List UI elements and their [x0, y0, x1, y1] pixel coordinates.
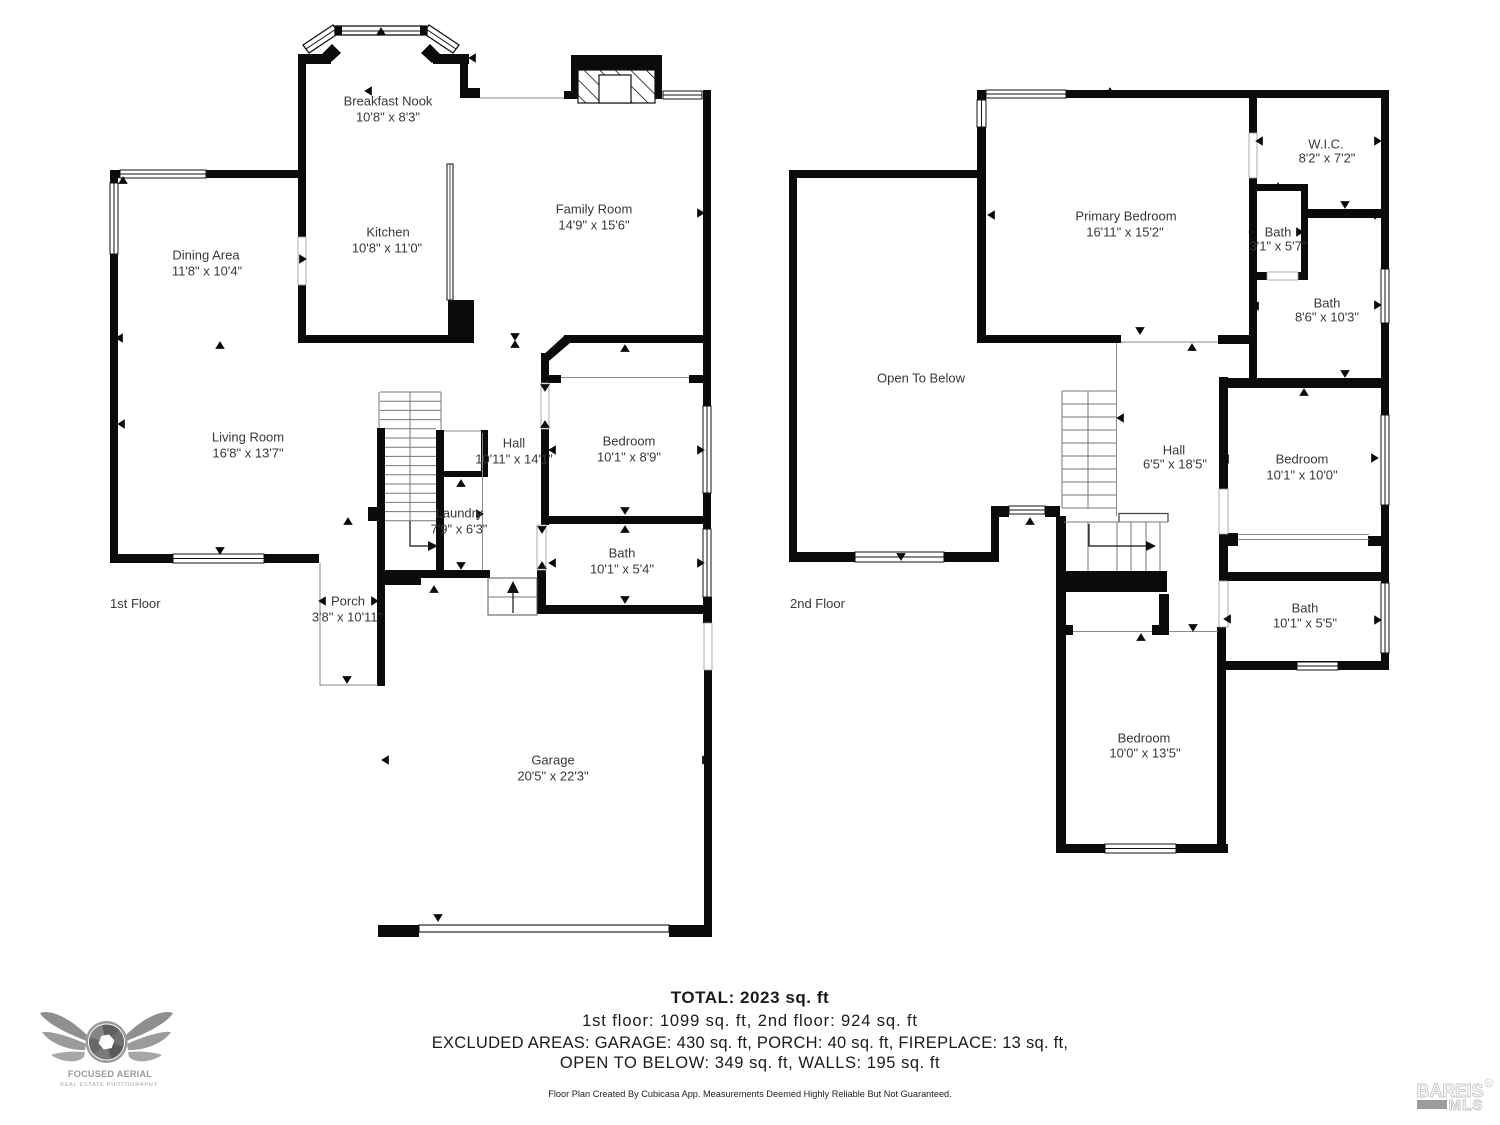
svg-text:Garage: Garage — [531, 753, 574, 768]
svg-text:TOTAL: 2023 sq. ft: TOTAL: 2023 sq. ft — [671, 988, 830, 1007]
svg-text:Bath: Bath — [1292, 601, 1319, 616]
svg-text:Bath: Bath — [1265, 225, 1292, 240]
svg-text:1st Floor: 1st Floor — [110, 596, 161, 611]
svg-text:1st floor: 1099 sq. ft, 2nd fl: 1st floor: 1099 sq. ft, 2nd floor: 924 s… — [582, 1012, 918, 1030]
svg-text:Bedroom: Bedroom — [1118, 731, 1171, 746]
svg-text:Bath: Bath — [609, 546, 636, 561]
svg-text:11'8" x 10'4": 11'8" x 10'4" — [172, 264, 243, 279]
svg-text:Floor Plan Created By Cubicasa: Floor Plan Created By Cubicasa App. Meas… — [548, 1089, 951, 1099]
svg-text:8'6" x 10'3": 8'6" x 10'3" — [1295, 310, 1359, 325]
svg-text:EXCLUDED AREAS: GARAGE: 430 sq: EXCLUDED AREAS: GARAGE: 430 sq. ft, PORC… — [432, 1034, 1068, 1052]
svg-text:Family Room: Family Room — [556, 202, 633, 217]
svg-text:20'5" x 22'3": 20'5" x 22'3" — [517, 769, 589, 784]
svg-text:10'1" x 5'4": 10'1" x 5'4" — [590, 562, 654, 577]
svg-text:Laundry: Laundry — [436, 506, 483, 521]
svg-text:Bath: Bath — [1314, 296, 1341, 311]
svg-text:16'8" x 13'7": 16'8" x 13'7" — [212, 446, 284, 461]
svg-text:14'9" x 15'6": 14'9" x 15'6" — [558, 218, 630, 233]
svg-text:10'1" x 5'5": 10'1" x 5'5" — [1273, 616, 1337, 631]
svg-text:8'2" x 7'2": 8'2" x 7'2" — [1299, 151, 1356, 166]
svg-text:REAL ESTATE PHOTOGRAPHY: REAL ESTATE PHOTOGRAPHY — [60, 1082, 158, 1088]
svg-text:Hall: Hall — [1163, 443, 1186, 458]
svg-text:Primary Bedroom: Primary Bedroom — [1075, 209, 1176, 224]
svg-text:MLS: MLS — [1449, 1097, 1484, 1114]
svg-text:10'8" x 8'3": 10'8" x 8'3" — [356, 110, 420, 125]
svg-text:2nd Floor: 2nd Floor — [790, 596, 846, 611]
svg-text:FOCUSED AERIAL: FOCUSED AERIAL — [68, 1069, 152, 1079]
svg-text:10'1" x 8'9": 10'1" x 8'9" — [597, 450, 661, 465]
svg-text:Open To Below: Open To Below — [877, 371, 966, 386]
svg-text:10'0" x 13'5": 10'0" x 13'5" — [1109, 746, 1181, 761]
svg-text:Bedroom: Bedroom — [1276, 452, 1329, 467]
svg-text:10'1" x 10'0": 10'1" x 10'0" — [1266, 468, 1338, 483]
svg-text:Kitchen: Kitchen — [366, 225, 409, 240]
svg-text:10'11" x 14'1": 10'11" x 14'1" — [475, 452, 553, 467]
svg-text:7'9" x 6'3": 7'9" x 6'3" — [431, 522, 488, 537]
svg-text:6'5" x 18'5": 6'5" x 18'5" — [1143, 457, 1207, 472]
svg-text:Living Room: Living Room — [212, 430, 284, 445]
svg-text:16'11" x 15'2": 16'11" x 15'2" — [1086, 225, 1164, 240]
svg-text:Dining Area: Dining Area — [172, 248, 240, 263]
svg-text:OPEN TO BELOW: 349 sq. ft, WAL: OPEN TO BELOW: 349 sq. ft, WALLS: 195 sq… — [560, 1054, 940, 1072]
svg-text:3'8" x 10'11": 3'8" x 10'11" — [312, 610, 383, 625]
svg-text:R: R — [1487, 1082, 1492, 1088]
svg-text:W.I.C.: W.I.C. — [1308, 137, 1343, 152]
svg-text:Hall: Hall — [503, 436, 526, 451]
svg-text:Bedroom: Bedroom — [603, 434, 656, 449]
svg-text:Breakfast Nook: Breakfast Nook — [344, 94, 433, 109]
svg-text:3'1" x 5'7": 3'1" x 5'7" — [1250, 239, 1307, 254]
svg-text:Porch: Porch — [331, 594, 365, 609]
svg-text:10'8" x 11'0": 10'8" x 11'0" — [352, 241, 423, 256]
